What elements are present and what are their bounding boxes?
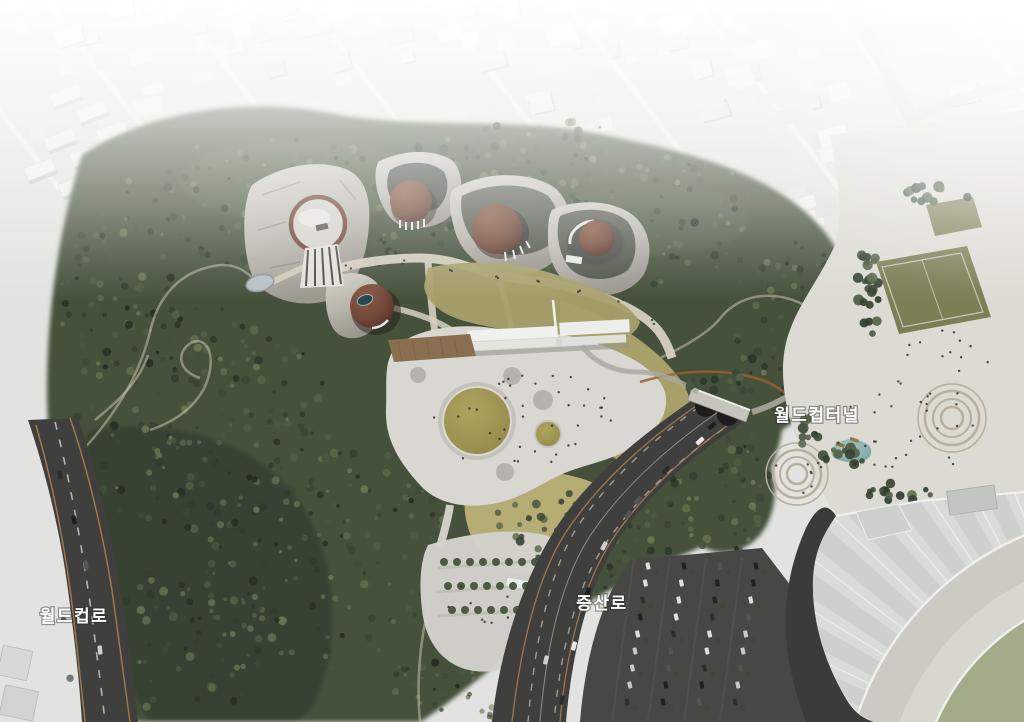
person-dot — [498, 438, 500, 440]
person-dot — [498, 383, 500, 385]
tree-dot — [137, 660, 141, 664]
tree-dot — [321, 594, 326, 599]
tree-dot — [147, 712, 154, 719]
tree-dot — [480, 709, 485, 714]
tree-dot — [353, 560, 361, 568]
entry-tree — [505, 558, 513, 566]
forecourt-tree — [823, 455, 830, 462]
person-dot — [469, 602, 471, 604]
tree-dot — [210, 336, 217, 343]
tree-dot — [440, 691, 445, 696]
parking-tree — [679, 637, 684, 642]
tree-dot — [689, 533, 694, 538]
tree-dot — [231, 519, 239, 527]
tree-dot — [397, 665, 401, 669]
tree-dot — [228, 562, 231, 565]
tree-dot — [281, 380, 287, 386]
tree-dot — [724, 484, 728, 488]
person-dot — [810, 472, 812, 474]
tree-dot — [243, 408, 249, 414]
tree-dot — [204, 581, 211, 588]
tree-dot — [428, 496, 437, 505]
paving-circle — [533, 390, 553, 410]
tree-dot — [161, 323, 167, 329]
tree-dot — [392, 688, 399, 695]
person-dot — [483, 621, 485, 623]
forecourt-tree — [799, 433, 807, 441]
person-dot — [481, 618, 483, 620]
tree-dot — [156, 351, 159, 354]
entry-tree — [509, 582, 517, 590]
tree-dot — [199, 481, 205, 487]
tree-dot — [645, 509, 650, 514]
person-dot — [517, 460, 519, 462]
person-dot — [447, 606, 449, 608]
tree-dot — [328, 575, 333, 580]
tree-dot — [201, 369, 209, 377]
tree-dot — [688, 516, 693, 521]
aerial-site-rendering: 월드컵터널 월드컵로 증산로 — [0, 0, 1024, 722]
forecourt-tree — [870, 487, 875, 492]
meadow-tree — [537, 513, 545, 521]
tree-dot — [606, 563, 613, 570]
tree-dot — [242, 376, 251, 385]
tree-dot — [82, 313, 87, 318]
person-dot — [507, 378, 509, 380]
tree-dot — [253, 542, 258, 547]
tree-dot — [252, 613, 256, 617]
tree-dot — [103, 364, 108, 369]
tree-dot — [162, 519, 167, 524]
tree-dot — [360, 485, 368, 493]
tree-dot — [255, 605, 262, 612]
tree-dot — [66, 675, 73, 682]
person-dot — [551, 424, 553, 426]
tree-dot — [471, 671, 475, 675]
tree-dot — [252, 594, 258, 600]
parking-tree — [720, 603, 725, 608]
tree-dot — [230, 360, 235, 365]
tree-dot — [208, 599, 215, 606]
tree-dot — [374, 517, 378, 521]
forecourt-tree — [798, 440, 806, 448]
forecourt-tree — [886, 479, 896, 489]
person-dot — [507, 616, 509, 618]
tree-dot — [439, 708, 443, 712]
person-dot — [504, 397, 506, 399]
tree-dot — [187, 501, 194, 508]
tree-dot — [313, 566, 320, 573]
tree-dot — [296, 354, 301, 359]
tree-dot — [258, 538, 262, 542]
tree-dot — [246, 357, 250, 361]
tree-dot — [126, 367, 134, 375]
forecourt-tree — [928, 492, 933, 497]
parking-tree — [684, 603, 689, 608]
parking-tree — [746, 671, 751, 676]
tree-dot — [168, 424, 172, 428]
tree-dot — [336, 504, 340, 508]
tree-dot — [211, 542, 219, 550]
tree-dot — [194, 696, 200, 702]
tree-dot — [247, 654, 250, 657]
tree-dot — [195, 630, 201, 636]
tree-dot — [268, 633, 277, 642]
tree-dot — [433, 688, 436, 691]
tree-dot — [232, 418, 236, 422]
forecourt-tree — [923, 487, 928, 492]
tree-dot — [632, 537, 638, 543]
tree-dot — [283, 498, 290, 505]
tree-dot — [62, 300, 69, 307]
tree-dot — [326, 490, 329, 493]
tree-dot — [102, 313, 107, 318]
tree-dot — [208, 537, 214, 543]
tree-dot — [293, 576, 298, 581]
tree-dot — [384, 452, 392, 460]
tree-dot — [623, 550, 627, 554]
person-dot — [820, 466, 822, 468]
tree-dot — [731, 518, 738, 525]
person-dot — [509, 384, 511, 386]
tree-dot — [391, 619, 396, 624]
tree-dot — [694, 496, 699, 501]
tree-dot — [760, 478, 766, 484]
tree-dot — [197, 344, 202, 349]
tree-dot — [412, 612, 417, 617]
tree-dot — [221, 657, 224, 660]
tree-dot — [725, 435, 732, 442]
tree-dot — [410, 486, 417, 493]
tree-dot — [208, 449, 214, 455]
tree-dot — [195, 307, 198, 310]
tree-dot — [240, 664, 245, 669]
tree-dot — [294, 501, 300, 507]
tree-dot — [208, 683, 217, 692]
tree-dot — [212, 615, 217, 620]
tree-dot — [393, 671, 399, 677]
tree-dot — [237, 503, 241, 507]
tree-dot — [125, 453, 129, 457]
tree-dot — [253, 364, 260, 371]
tree-dot — [152, 453, 157, 458]
person-dot — [522, 415, 524, 417]
tree-dot — [256, 496, 264, 504]
tree-dot — [421, 489, 425, 493]
tree-dot — [125, 320, 133, 328]
tree-dot — [209, 520, 215, 526]
meadow-tree — [517, 522, 522, 527]
tree-dot — [301, 535, 307, 541]
tree-dot — [176, 666, 182, 672]
parking-tree — [761, 569, 766, 574]
person-dot — [555, 453, 557, 455]
person-dot — [552, 375, 554, 377]
tree-dot — [179, 492, 185, 498]
tree-dot — [368, 615, 375, 622]
parking-tree — [756, 603, 761, 608]
entry-tree — [461, 606, 469, 614]
meadow-tree — [512, 502, 518, 508]
tree-dot — [733, 458, 742, 467]
tree-dot — [247, 625, 254, 632]
tree-dot — [178, 581, 185, 588]
tree-dot — [286, 421, 291, 426]
tree-dot — [748, 431, 756, 439]
tree-dot — [317, 533, 321, 537]
tree-dot — [267, 419, 273, 425]
tree-dot — [376, 561, 379, 564]
tree-dot — [682, 504, 690, 512]
tree-dot — [346, 519, 350, 523]
meadow-tree — [535, 545, 542, 552]
tree-dot — [242, 623, 247, 628]
tree-dot — [202, 457, 208, 463]
parking-tree — [648, 603, 653, 608]
tree-dot — [609, 574, 613, 578]
meadow-tree — [496, 522, 503, 529]
tree-dot — [455, 684, 460, 689]
tree-dot — [325, 518, 331, 524]
tree-dot — [325, 647, 331, 653]
tree-dot — [435, 674, 438, 677]
tree-dot — [110, 421, 119, 430]
tree-dot — [273, 431, 276, 434]
parking-tree — [725, 569, 730, 574]
tree-dot — [188, 377, 194, 383]
tree-dot — [133, 304, 138, 309]
tree-dot — [363, 571, 366, 574]
tree-dot — [173, 492, 179, 498]
tree-dot — [219, 406, 225, 412]
entry-tree — [492, 558, 500, 566]
tree-dot — [393, 508, 397, 512]
tree-dot — [332, 596, 338, 602]
tree-dot — [251, 604, 256, 609]
tree-dot — [603, 586, 607, 590]
tree-dot — [301, 402, 308, 409]
tree-dot — [355, 474, 359, 478]
tree-dot — [132, 406, 139, 413]
tree-dot — [261, 563, 267, 569]
tree-dot — [137, 606, 145, 614]
tree-dot — [242, 601, 246, 605]
tree-dot — [145, 515, 152, 522]
tree-dot — [117, 508, 123, 514]
person-dot — [895, 457, 897, 459]
tree-dot — [343, 532, 351, 540]
tree-dot — [79, 342, 87, 350]
person-dot — [802, 492, 804, 494]
tree-dot — [131, 346, 137, 352]
tree-dot — [146, 470, 152, 476]
entry-tree — [440, 558, 448, 566]
tree-dot — [222, 632, 226, 636]
tree-dot — [149, 679, 152, 682]
tree-dot — [308, 478, 314, 484]
tree-dot — [163, 647, 169, 653]
tree-dot — [310, 431, 314, 435]
tree-dot — [180, 440, 186, 446]
tree-dot — [743, 445, 746, 448]
tree-dot — [114, 361, 120, 367]
tree-dot — [369, 582, 372, 585]
tree-dot — [738, 544, 743, 549]
tree-dot — [438, 513, 442, 517]
tree-dot — [150, 485, 156, 491]
parking-tree — [638, 671, 643, 676]
person-dot — [884, 465, 886, 467]
tree-dot — [291, 347, 298, 354]
tree-dot — [337, 451, 341, 455]
person-dot — [874, 440, 876, 442]
meadow-tree — [542, 526, 547, 531]
person-dot — [775, 464, 777, 466]
person-dot — [433, 416, 435, 418]
tree-dot — [644, 522, 650, 528]
tree-dot — [431, 702, 437, 708]
entry-tree — [500, 606, 508, 614]
tree-dot — [274, 542, 278, 546]
tree-dot — [223, 591, 229, 597]
tree-dot — [368, 489, 372, 493]
person-dot — [460, 585, 462, 587]
tree-dot — [239, 324, 245, 330]
tree-dot — [343, 520, 346, 523]
tree-dot — [187, 587, 191, 591]
person-dot — [815, 432, 817, 434]
tree-dot — [651, 512, 657, 518]
tree-dot — [180, 591, 185, 596]
tree-dot — [241, 598, 244, 601]
tree-dot — [89, 302, 95, 308]
tree-dot — [209, 609, 214, 614]
tree-dot — [100, 462, 109, 471]
car — [97, 645, 102, 654]
tree-dot — [429, 512, 435, 518]
tree-dot — [150, 696, 157, 703]
entry-tree — [470, 582, 478, 590]
tree-dot — [262, 586, 265, 589]
tree-dot — [373, 541, 381, 549]
person-dot — [570, 376, 572, 378]
site-plan-canvas: 월드컵터널 월드컵로 증산로 — [0, 0, 1024, 722]
person-dot — [873, 464, 875, 466]
tree-dot — [350, 450, 358, 458]
tree-dot — [82, 359, 89, 366]
tree-dot — [755, 458, 759, 462]
parking-tree — [715, 637, 720, 642]
tree-dot — [250, 326, 259, 335]
tree-dot — [243, 424, 251, 432]
forecourt-tree — [805, 434, 811, 440]
tree-dot — [406, 605, 412, 611]
person-dot — [837, 441, 839, 443]
tree-dot — [274, 617, 279, 622]
tree-dot — [239, 528, 245, 534]
parking-tree — [710, 671, 715, 676]
tree-dot — [287, 545, 292, 550]
tree-dot — [408, 498, 413, 503]
person-dot — [817, 462, 819, 464]
tree-dot — [349, 484, 352, 487]
tree-dot — [741, 477, 746, 482]
tree-dot — [241, 669, 244, 672]
tree-dot — [208, 592, 214, 598]
label-worldcup-ro: 월드컵로 — [40, 606, 109, 626]
tree-dot — [616, 559, 620, 563]
tree-dot — [214, 508, 222, 516]
tree-dot — [466, 695, 471, 700]
tree-dot — [230, 596, 238, 604]
tree-dot — [232, 617, 239, 624]
tree-dot — [187, 351, 194, 358]
tree-dot — [218, 389, 226, 397]
meadow-tree — [526, 515, 532, 521]
tree-dot — [233, 375, 240, 382]
tree-dot — [377, 513, 381, 517]
tree-dot — [401, 666, 407, 672]
tree-dot — [173, 336, 178, 341]
person-dot — [864, 445, 866, 447]
tree-dot — [230, 383, 235, 388]
tree-dot — [741, 483, 747, 489]
tree-dot — [96, 307, 100, 311]
tree-dot — [249, 413, 254, 418]
tree-dot — [698, 541, 706, 549]
tree-dot — [732, 500, 736, 504]
tree-dot — [247, 592, 251, 596]
entry-tree — [479, 558, 487, 566]
tree-dot — [216, 440, 222, 446]
tree-dot — [255, 635, 262, 642]
tree-dot — [396, 503, 400, 507]
tree-dot — [756, 494, 765, 503]
meadow-tree — [519, 534, 524, 539]
lawn-circle-small — [535, 421, 561, 447]
paving-circle — [503, 367, 521, 385]
tree-dot — [156, 458, 164, 466]
tree-dot — [285, 418, 288, 421]
tree-dot — [285, 579, 288, 582]
tree-dot — [719, 439, 725, 445]
tree-dot — [114, 437, 121, 444]
tree-dot — [271, 466, 276, 471]
tree-dot — [255, 661, 262, 668]
tree-dot — [687, 497, 691, 501]
tree-dot — [155, 497, 159, 501]
tree-dot — [137, 584, 143, 590]
tree-dot — [268, 408, 274, 414]
tree-dot — [664, 547, 672, 555]
tree-dot — [383, 469, 391, 477]
person-dot — [468, 407, 470, 409]
tree-dot — [176, 446, 180, 450]
person-dot — [952, 463, 954, 465]
tree-dot — [487, 714, 492, 719]
tree-dot — [103, 348, 112, 357]
tree-dot — [230, 631, 236, 637]
person-dot — [567, 444, 569, 446]
tree-dot — [240, 339, 245, 344]
parking-tree — [741, 705, 746, 710]
lawn-circle-large — [444, 388, 510, 454]
meadow-tree — [532, 500, 541, 509]
tree-dot — [365, 634, 372, 641]
tree-dot — [221, 307, 224, 310]
forecourt-tree — [885, 492, 893, 500]
tree-dot — [208, 560, 215, 567]
